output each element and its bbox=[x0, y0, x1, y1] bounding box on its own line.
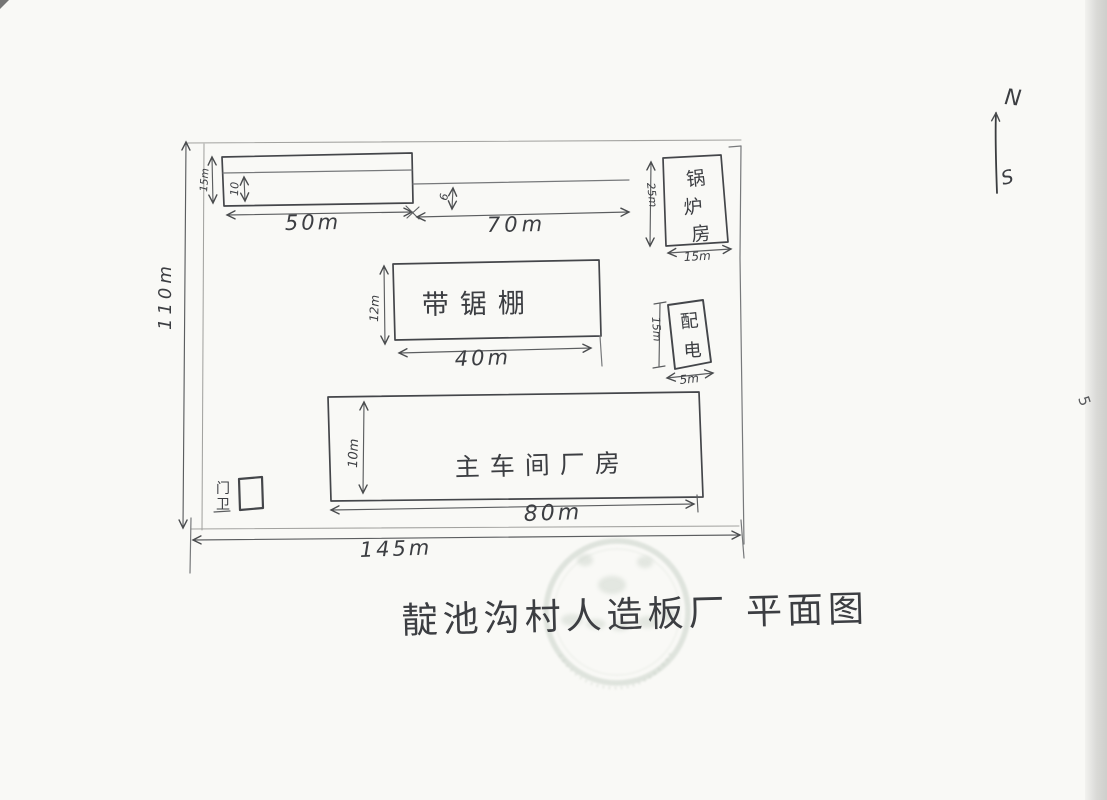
dim-site-height: 110m bbox=[155, 142, 186, 528]
dim-saw-shed-width-label: 40m bbox=[454, 345, 511, 371]
gatehouse-outline bbox=[239, 477, 263, 510]
dim-power-height-label: 15m bbox=[649, 316, 664, 342]
boundary-right bbox=[740, 146, 744, 544]
boundary-right-tick bbox=[729, 146, 741, 147]
boiler-room-label-char3: 房 bbox=[691, 222, 712, 246]
power-room: 15m 配 电 5m bbox=[649, 300, 713, 387]
dim-workshop-width-label: 80m bbox=[523, 500, 582, 527]
dim-power-width-label: 5m bbox=[679, 371, 700, 387]
dim-boiler-height-label: 25m bbox=[644, 182, 660, 208]
power-room-label-char2: 电 bbox=[683, 340, 702, 362]
power-room-label-char1: 配 bbox=[679, 310, 699, 333]
boiler-room-label-char1: 锅 bbox=[685, 167, 706, 191]
main-workshop-outline bbox=[328, 392, 703, 501]
dim-north-strip-gap-label: 6 bbox=[437, 192, 451, 201]
dim-saw-shed-height-label: 12m bbox=[367, 295, 382, 322]
dim-north-strip-gap bbox=[452, 188, 453, 209]
dim-workshop-width bbox=[331, 504, 694, 510]
dim-site-width-label: 145m bbox=[359, 535, 432, 562]
north-shed-inner-line bbox=[223, 170, 412, 173]
dim-north-strip-width-label: 70m bbox=[487, 212, 547, 237]
plan-title: 靛池沟村人造板厂 平面图 bbox=[401, 589, 869, 642]
dim-saw-shed-height bbox=[384, 266, 385, 344]
boundary-bottom bbox=[191, 526, 739, 529]
dim-workshop-height-label: 10m bbox=[346, 438, 362, 468]
main-workshop: 主车间厂房 10m 80m bbox=[328, 392, 703, 527]
scanned-plan-page: N S 110m 15m 10 50m bbox=[0, 0, 1107, 800]
main-workshop-label: 主车间厂房 bbox=[454, 448, 630, 482]
compass-north-label: N bbox=[1003, 85, 1022, 112]
boiler-room-label-char2: 炉 bbox=[683, 196, 704, 219]
dim-workshop-height bbox=[363, 402, 364, 493]
gatehouse: 门 卫 bbox=[214, 477, 263, 513]
dim-north-shed-width-label: 50m bbox=[285, 210, 342, 235]
north-shed-outline bbox=[222, 153, 413, 206]
dim-north-shed-inner bbox=[244, 177, 245, 201]
page-mark: 5 bbox=[1074, 394, 1094, 409]
gatehouse-label-char1: 门 bbox=[216, 481, 230, 497]
saw-shed: 带锯棚 12m 40m bbox=[367, 260, 602, 371]
site-boundary bbox=[186, 140, 744, 544]
dim-north-shed-inner-label: 10 bbox=[228, 182, 241, 196]
saw-shed-label: 带锯棚 bbox=[422, 288, 537, 321]
north-strip-line bbox=[413, 180, 629, 184]
boundary-top bbox=[186, 140, 741, 143]
boiler-room: 25m 锅 炉 房 15m bbox=[644, 155, 731, 264]
dim-north-shed-height bbox=[212, 157, 213, 203]
north-strip: 70m 6 bbox=[413, 180, 629, 237]
dim-north-shed-height-label: 15m bbox=[198, 168, 212, 192]
north-arrow bbox=[996, 113, 997, 193]
saw-shed-edge-extension bbox=[600, 336, 602, 366]
compass-south-label: S bbox=[999, 166, 1016, 190]
plan-drawing: N S 110m 15m 10 50m bbox=[0, 0, 1107, 800]
north-shed: 15m 10 50m bbox=[198, 153, 419, 235]
dim-site-height-label: 110m bbox=[155, 262, 176, 330]
dim-boiler-width-label: 15m bbox=[683, 249, 711, 264]
dim-site-width-left-stub bbox=[190, 518, 191, 573]
compass: N S bbox=[996, 85, 1023, 193]
boundary-left bbox=[202, 144, 204, 530]
